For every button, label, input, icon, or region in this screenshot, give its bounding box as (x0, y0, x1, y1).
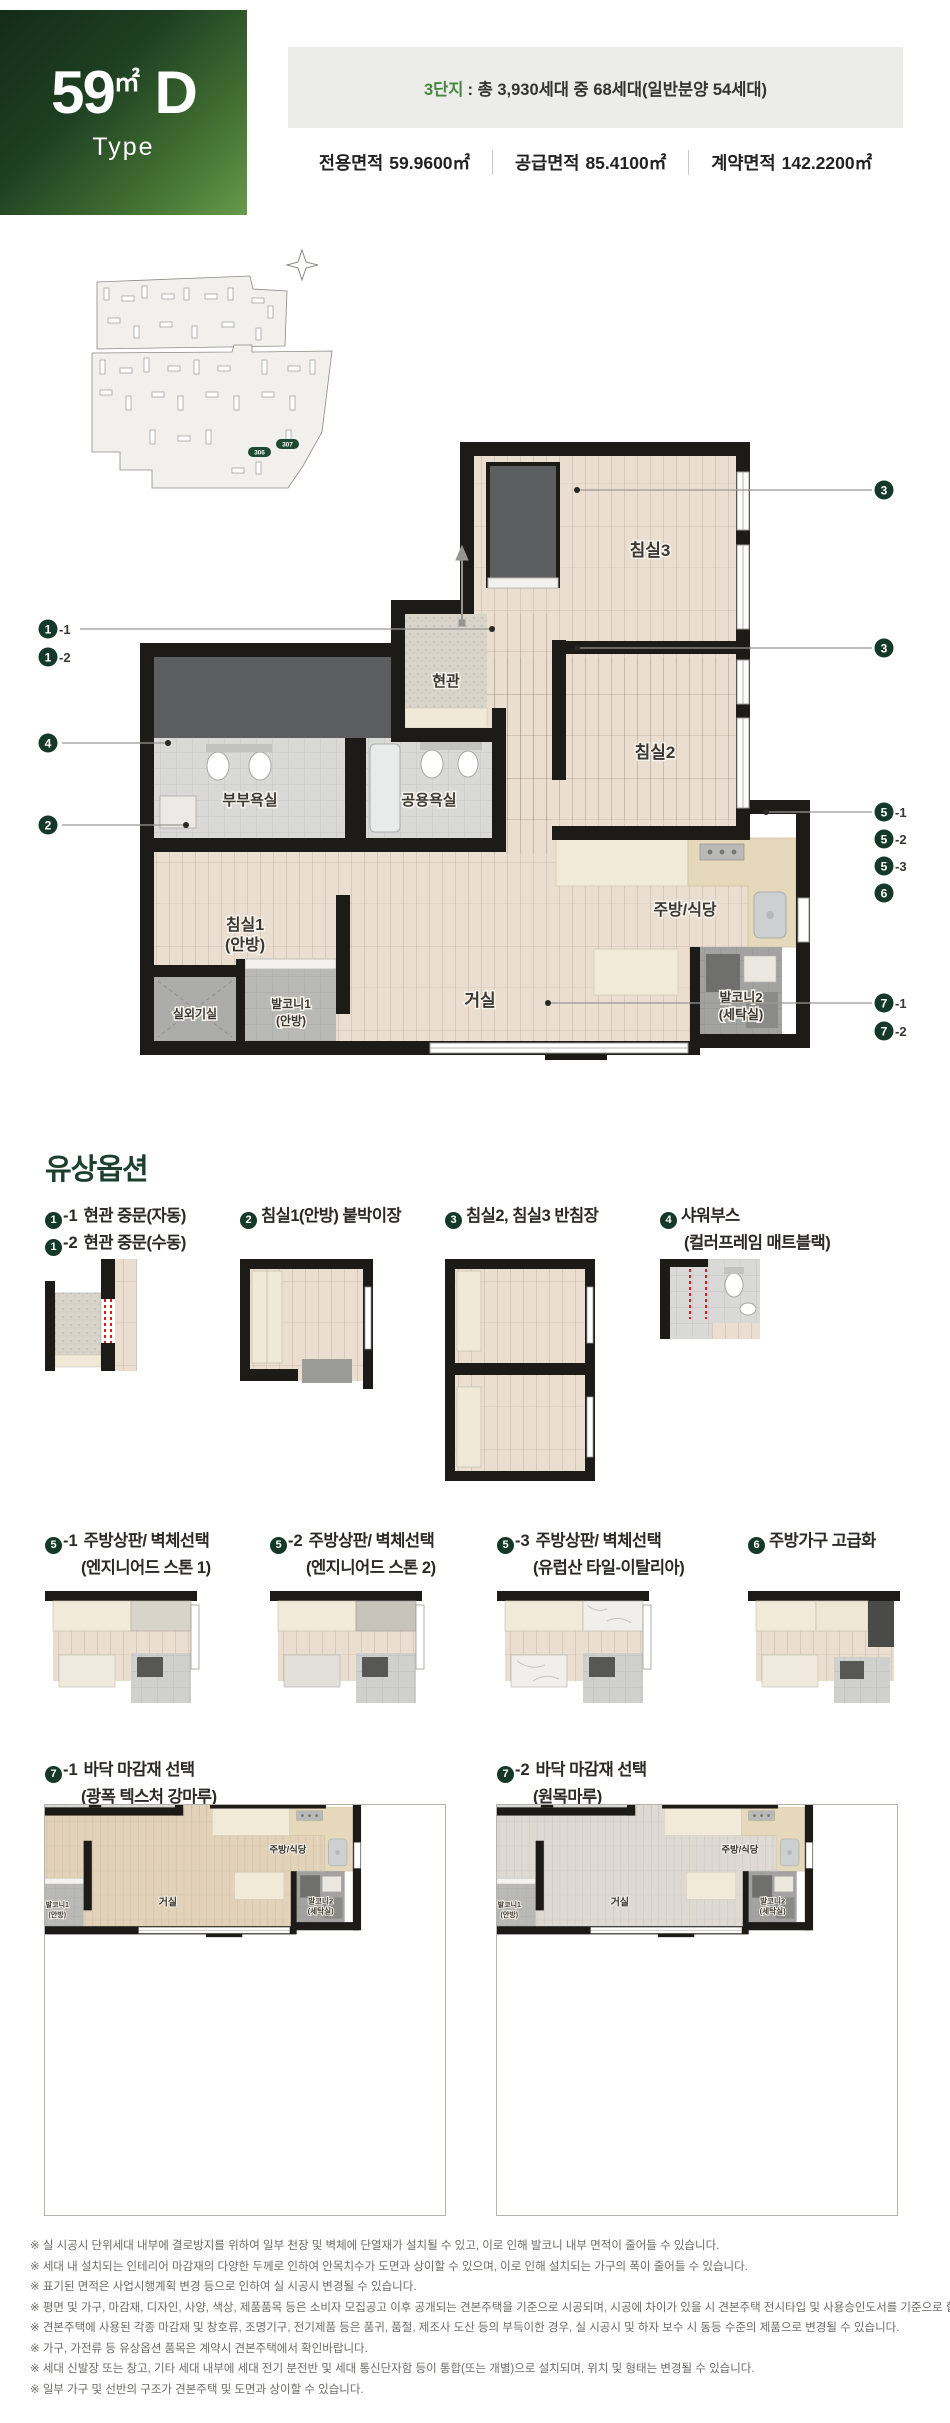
callout-7-2: 7 -2 (875, 1022, 907, 1041)
footnote: ※ 세대 내 설치되는 인테리어 마감재의 다양한 두께로 인하여 안목치수가 … (30, 2257, 935, 2278)
option-3-header: 3침실2, 침실3 반침장 (445, 1203, 598, 1230)
option-4-thumbnail (660, 1259, 760, 1339)
callout-2: 2 (39, 816, 58, 835)
callout-3b: 3 (875, 639, 894, 658)
footnote: ※ 일부 가구 및 선반의 구조가 견본주택 및 도면과 상이할 수 있습니다. (30, 2380, 935, 2401)
option-1-header: 1-1현관 중문(자동) 1-2현관 중문(수동) (45, 1203, 186, 1257)
area-summary: 전용면적59.9600㎡ 공급면적85.4100㎡ 계약면적142.2200㎡ (288, 150, 903, 175)
footnote: ※ 표기된 면적은 사업시행계획 변경 등으로 인하여 실 시공시 변경될 수 … (30, 2277, 935, 2298)
svg-text:-3: -3 (895, 859, 907, 874)
svg-text:6: 6 (881, 887, 888, 901)
option-7-2-plan-image (496, 1804, 898, 2216)
footnote: ※ 견본주택에 사용된 각종 마감재 및 창호류, 조명기구, 전기제품 등은 … (30, 2318, 935, 2339)
callout-3a: 3 (875, 481, 894, 500)
callout-5-3: 5 -3 (875, 857, 907, 876)
compass-icon (287, 250, 318, 280)
svg-text:2: 2 (45, 819, 52, 833)
svg-text:5: 5 (881, 860, 888, 874)
option-5-1-header: 5-1주방상판/ 벽체선택 (엔지니어드 스톤 1) (45, 1528, 211, 1582)
footnote: ※ 세대 신발장 또는 창고, 기타 세대 내부에 세대 전기 분전반 및 세대… (30, 2359, 935, 2380)
option-5-2-header: 5-2주방상판/ 벽체선택 (엔지니어드 스톤 2) (270, 1528, 436, 1582)
option-7-1-plan-image (44, 1804, 446, 2216)
unit-type-title: 59㎡ D (51, 63, 196, 123)
callout-4: 4 (39, 734, 58, 753)
callout-5-2: 5 -2 (875, 830, 907, 849)
floorplan-page: 침실3 침실2 현관 부부욕실 공용욕실 주방/식당 침실1 (안방) 거실 발… (0, 0, 950, 2423)
option-7-1-header: 7-1바닥 마감재 선택 (광폭 텍스처 강마루) (45, 1757, 217, 1811)
svg-text:5: 5 (881, 806, 888, 820)
unit-type-badge: 59㎡ D Type (0, 10, 247, 215)
complex-info-bar: 3단지 : 총 3,930세대 중 68세대(일반분양 54세대) (288, 47, 903, 128)
option-5-2-thumbnail (270, 1591, 430, 1703)
svg-text:7: 7 (881, 1025, 888, 1039)
complex-name: 3단지 (424, 76, 464, 100)
svg-text:-2: -2 (895, 832, 907, 847)
option-5-1-thumbnail (45, 1591, 205, 1703)
option-1-thumbnail (45, 1259, 137, 1371)
area-contract: 계약면적142.2200㎡ (688, 150, 894, 175)
option-5-3-header: 5-3주방상판/ 벽체선택 (유럽산 타일-이탈리아) (497, 1528, 684, 1582)
footnote: ※ 가구, 가전류 등 유상옵션 품목은 계약시 견본주택에서 확인바랍니다. (30, 2339, 935, 2360)
option-4-header: 4샤워부스 (컬러프레임 매트블랙) (660, 1203, 830, 1257)
svg-text:-1: -1 (59, 622, 71, 637)
svg-text:3: 3 (881, 642, 888, 656)
svg-text:-1: -1 (895, 805, 907, 820)
svg-text:1: 1 (45, 623, 52, 637)
complex-units: : 총 3,930세대 중 68세대(일반분양 54세대) (467, 76, 767, 100)
option-2-header: 2침실1(안방) 붙박이장 (240, 1203, 401, 1230)
svg-text:7: 7 (881, 997, 888, 1011)
svg-text:-2: -2 (895, 1024, 907, 1039)
svg-text:-1: -1 (895, 996, 907, 1011)
svg-text:5: 5 (881, 833, 888, 847)
area-supply: 공급면적85.4100㎡ (492, 150, 688, 175)
area-exclusive: 전용면적59.9600㎡ (297, 150, 492, 175)
option-7-2-header: 7-2바닥 마감재 선택 (원목마루) (497, 1757, 647, 1811)
svg-text:-2: -2 (59, 650, 71, 665)
option-3-thumbnail (445, 1259, 595, 1481)
option-2-thumbnail (240, 1259, 373, 1389)
unit-type-sub: Type (92, 133, 154, 162)
svg-text:4: 4 (45, 737, 52, 751)
callout-1-1: 1 -1 (39, 620, 71, 639)
footnotes: ※ 실 시공시 단위세대 내부에 결로방지를 위하여 일부 천장 및 벽체에 단… (30, 2236, 935, 2400)
callout-6: 6 (875, 884, 894, 903)
svg-text:1: 1 (45, 651, 52, 665)
callout-1-2: 1 -2 (39, 648, 71, 667)
main-floor-plan: 1 -1 1 -2 4 2 3 3 5 -1 5 -2 5 -3 (0, 430, 950, 1090)
option-6-thumbnail (748, 1591, 908, 1703)
option-6-header: 6주방가구 고급화 (748, 1528, 876, 1555)
footnote: ※ 실 시공시 단위세대 내부에 결로방지를 위하여 일부 천장 및 벽체에 단… (30, 2236, 935, 2257)
svg-text:3: 3 (881, 484, 888, 498)
paid-options-title: 유상옵션 (45, 1146, 148, 1188)
callout-7-1: 7 -1 (875, 994, 907, 1013)
option-5-3-thumbnail (497, 1591, 657, 1703)
footnote: ※ 평면 및 가구, 마감재, 디자인, 사양, 색상, 제품품목 등은 소비자… (30, 2298, 935, 2319)
callout-5-1: 5 -1 (875, 803, 907, 822)
